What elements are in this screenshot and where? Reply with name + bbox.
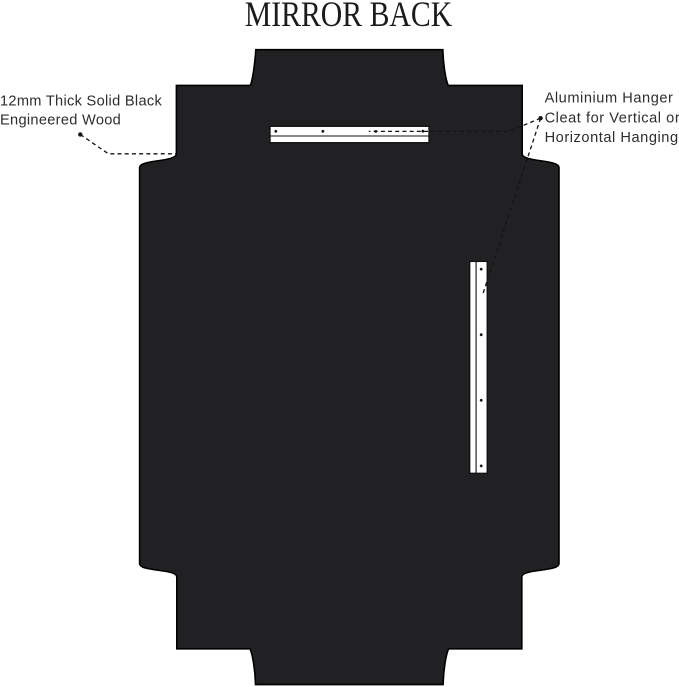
svg-text:MIRROR BACK: MIRROR BACK <box>245 0 453 34</box>
svg-text:12mm Thick Solid Black: 12mm Thick Solid Black <box>0 94 162 110</box>
svg-text:Aluminium Hanger: Aluminium Hanger <box>545 90 674 106</box>
svg-text:Engineered Wood: Engineered Wood <box>0 112 121 128</box>
svg-text:Horizontal Hanging: Horizontal Hanging <box>545 130 679 146</box>
svg-text:Cleat for Vertical or: Cleat for Vertical or <box>545 110 679 126</box>
